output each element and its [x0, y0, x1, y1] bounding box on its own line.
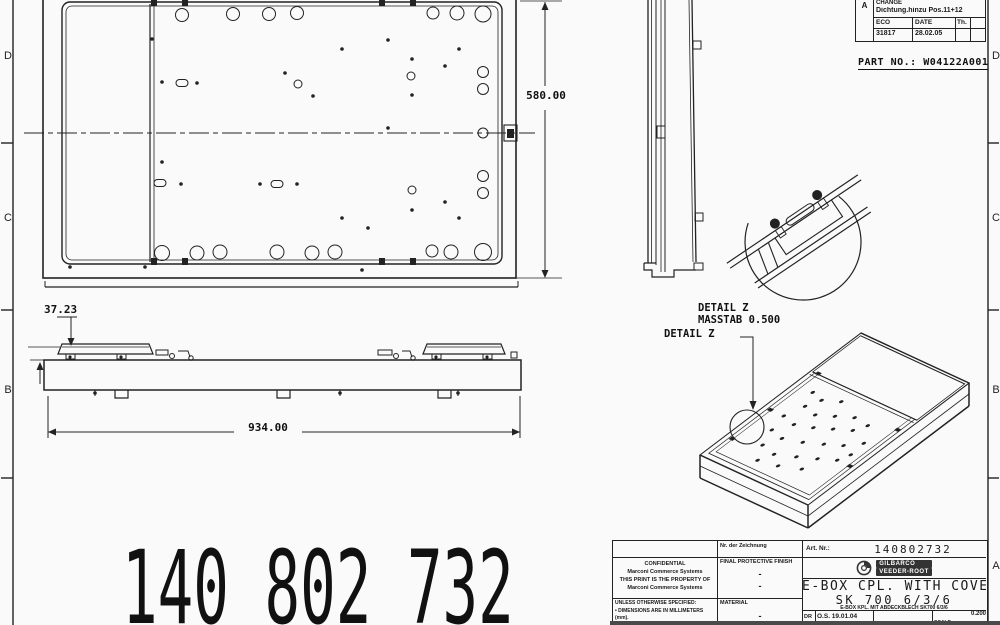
dr-value: O.S. 19.01.04 [817, 613, 873, 620]
zone-letter-left-d: D [2, 50, 14, 62]
zone-letter-right-b: B [990, 384, 1000, 396]
end-view [644, 0, 703, 277]
revision-letter: A [856, 1, 873, 10]
logo-line-2: VEEDER-ROOT [876, 568, 932, 576]
plan-view [24, 0, 535, 287]
confidential-note: CONFIDENTIAL Marconi Commerce Systems TH… [613, 560, 717, 592]
date-value: 28.02.05 [915, 30, 955, 37]
material-label: MATERIAL [720, 600, 800, 606]
dim-length-label: 934.00 [234, 421, 302, 434]
confidential-line-1: CONFIDENTIAL [613, 560, 717, 568]
dim-37-lines [28, 317, 77, 384]
dim-580-lines [516, 1, 562, 278]
logo-line-1: GILBARCO [876, 560, 932, 568]
art-no-label: Art. Nr.: [806, 545, 846, 552]
sheet-bottom-edge [610, 621, 1000, 625]
scale-value: 0.200 [971, 611, 986, 617]
confidential-line-4: Marconi Commerce Systems [613, 584, 717, 592]
detail-z-view [721, 166, 879, 300]
eco-value: 31817 [876, 30, 912, 37]
dim-rail-height-label: 37.23 [44, 303, 77, 316]
big-part-number: 140 802 732 [122, 538, 514, 625]
th-label: Th. [957, 19, 970, 26]
finish-value-2: - [720, 581, 800, 591]
revision-table: A CHANGE Dichtung.hinzu Pos.11+12 ECO DA… [855, 0, 986, 42]
finish-label: FINAL PROTECTIVE FINISH [720, 559, 800, 565]
drawing-title-line1: E-BOX CPL. WITH COVER [802, 579, 986, 594]
art-no-value: 140802732 [853, 543, 973, 556]
side-view [44, 344, 521, 398]
material-value: - [720, 611, 800, 621]
detail-callout: DETAIL Z [664, 328, 715, 340]
finish-value-1: - [720, 569, 800, 579]
logo-cell: GILBARCO VEEDER-ROOT [802, 557, 986, 578]
part-number: PART NO.: W04122A001 [858, 57, 988, 70]
logo-text: GILBARCO VEEDER-ROOT [876, 560, 932, 576]
drawing-sheet: D C B D C B A 580.00 37.23 934.00 DETAIL… [0, 0, 1000, 625]
zone-letter-left-b: B [2, 384, 14, 396]
detail-scale: MASSTAB 0.500 [698, 314, 780, 326]
revision-change-label: CHANGE [876, 0, 986, 6]
confidential-line-3: THIS PRINT IS THE PROPERTY OF [613, 576, 717, 584]
eco-label: ECO [876, 19, 912, 26]
zone-letter-right-a: A [990, 560, 1000, 572]
confidential-line-2: Marconi Commerce Systems [613, 568, 717, 576]
dr-label: DR [804, 614, 815, 620]
zone-letter-right-c: C [990, 212, 1000, 224]
dim-height-label: 580.00 [523, 89, 569, 102]
revision-change-text: Dichtung.hinzu Pos.11+12 [876, 7, 986, 14]
zone-letter-left-c: C [2, 212, 14, 224]
title-block: Nr. der Zeichnung Art. Nr.: 140802732 CO… [612, 540, 988, 625]
drawing-subtitle-de: E-BOX KPL. MIT ABDECKBLECH SK700 6/3/6 [802, 605, 986, 611]
spec-line-1: UNLESS OTHERWISE SPECIFIED: [615, 600, 717, 608]
zone-letter-right-d: D [990, 50, 1000, 62]
iso-view [700, 333, 969, 528]
detail-title: DETAIL Z [698, 302, 749, 314]
drawing-no-label: Nr. der Zeichnung [720, 543, 800, 549]
gilbarco-logo-icon [856, 560, 872, 576]
date-label: DATE [915, 19, 955, 26]
